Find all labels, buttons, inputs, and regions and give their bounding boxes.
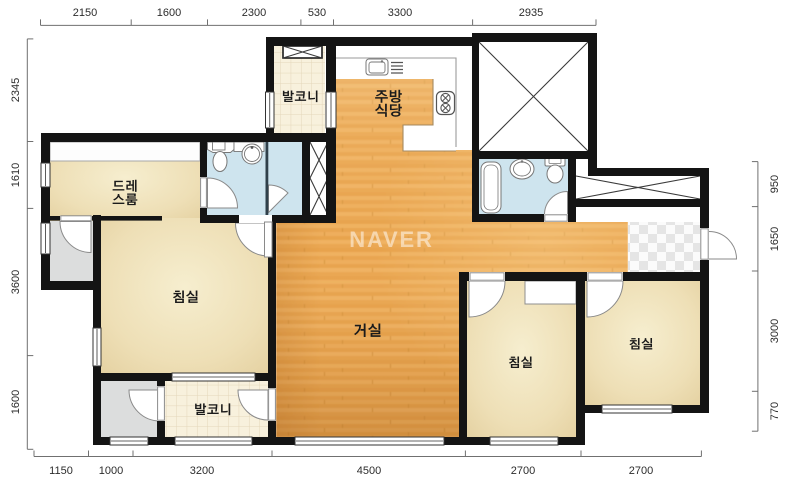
svg-text:2300: 2300: [242, 7, 266, 19]
svg-text:3200: 3200: [190, 465, 214, 477]
svg-text:1600: 1600: [157, 7, 181, 19]
svg-text:3000: 3000: [769, 319, 781, 343]
svg-text:2150: 2150: [73, 7, 97, 19]
svg-text:NAVER: NAVER: [349, 227, 433, 252]
svg-text:1000: 1000: [99, 465, 123, 477]
svg-text:2345: 2345: [10, 78, 22, 102]
svg-text:1650: 1650: [769, 227, 781, 251]
svg-text:3600: 3600: [10, 270, 22, 294]
svg-text:1600: 1600: [10, 390, 22, 414]
svg-text:3300: 3300: [388, 7, 412, 19]
svg-text:4500: 4500: [357, 465, 381, 477]
svg-text:770: 770: [769, 402, 781, 420]
svg-text:2700: 2700: [629, 465, 653, 477]
svg-text:1610: 1610: [10, 163, 22, 187]
svg-text:530: 530: [308, 7, 326, 19]
svg-text:1150: 1150: [49, 465, 73, 477]
svg-text:950: 950: [769, 175, 781, 193]
svg-text:2700: 2700: [511, 465, 535, 477]
svg-text:2935: 2935: [519, 7, 543, 19]
